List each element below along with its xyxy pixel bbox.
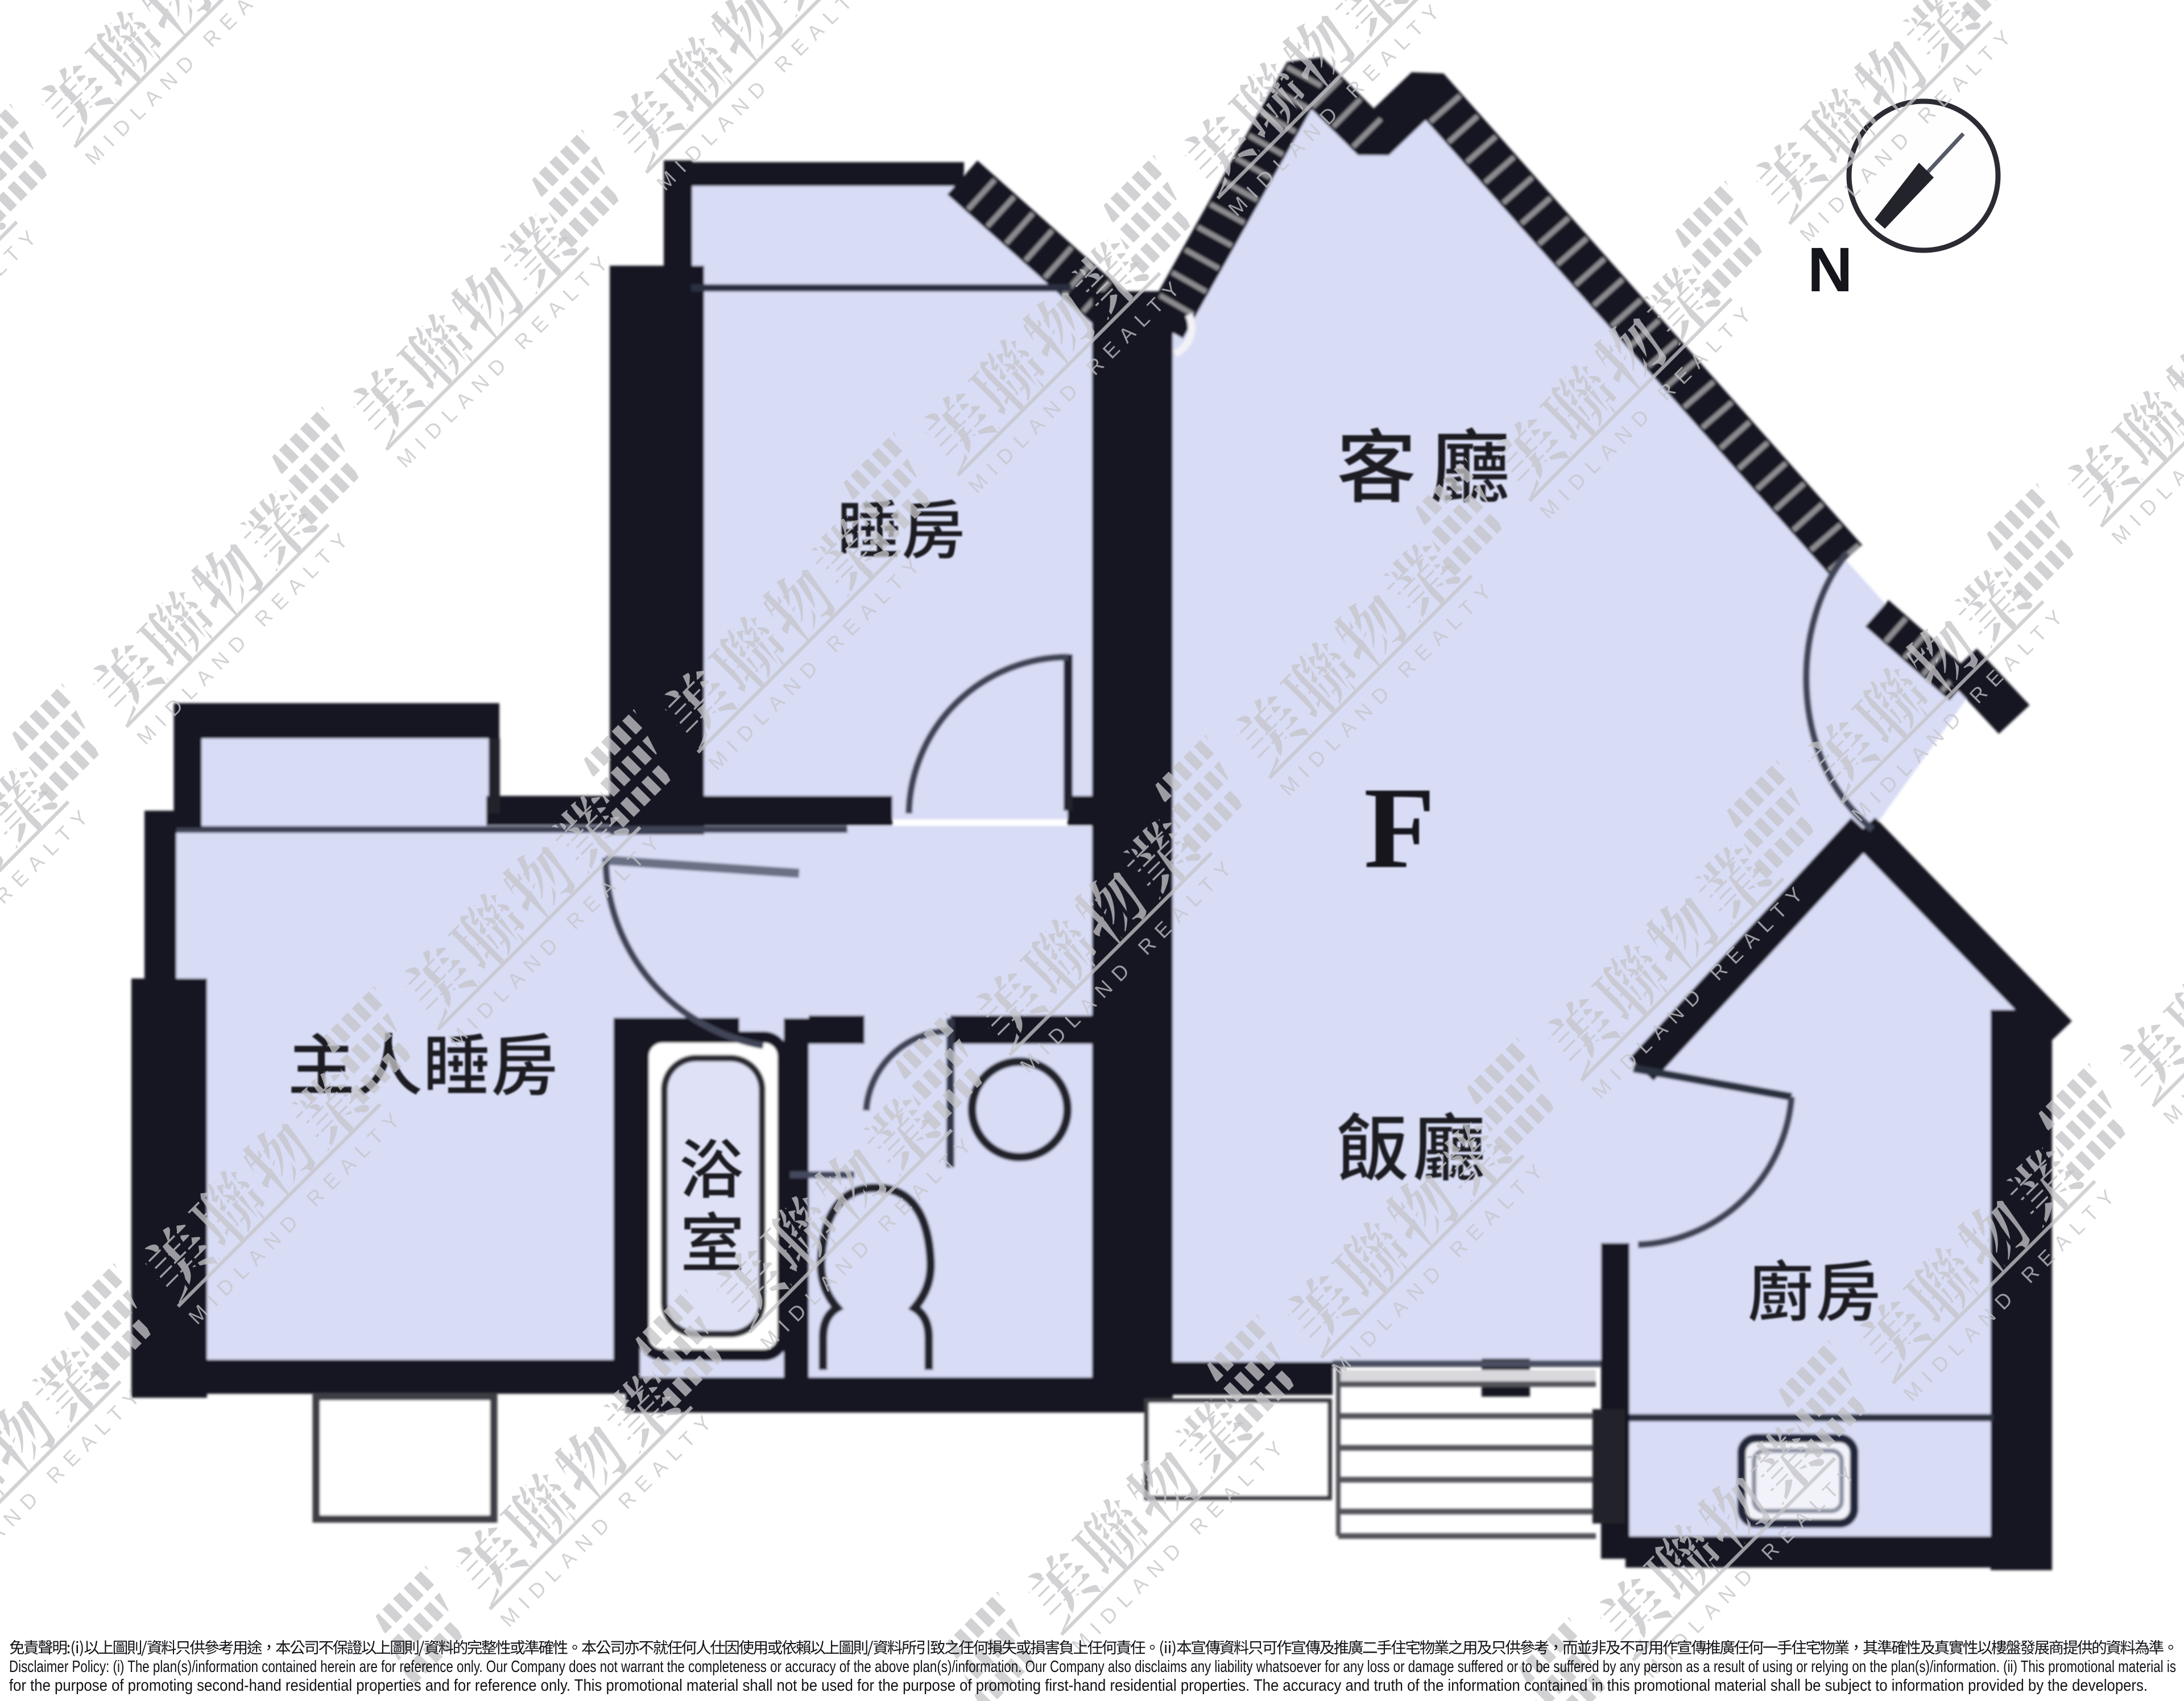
svg-text:for the purpose of promoting s: for the purpose of promoting second-hand…: [9, 1677, 2148, 1695]
svg-text:Disclaimer Policy: (i) The pla: Disclaimer Policy: (i) The plan(s)/infor…: [9, 1658, 2176, 1676]
svg-text:F: F: [1364, 763, 1435, 893]
svg-text:N: N: [1807, 235, 1852, 305]
